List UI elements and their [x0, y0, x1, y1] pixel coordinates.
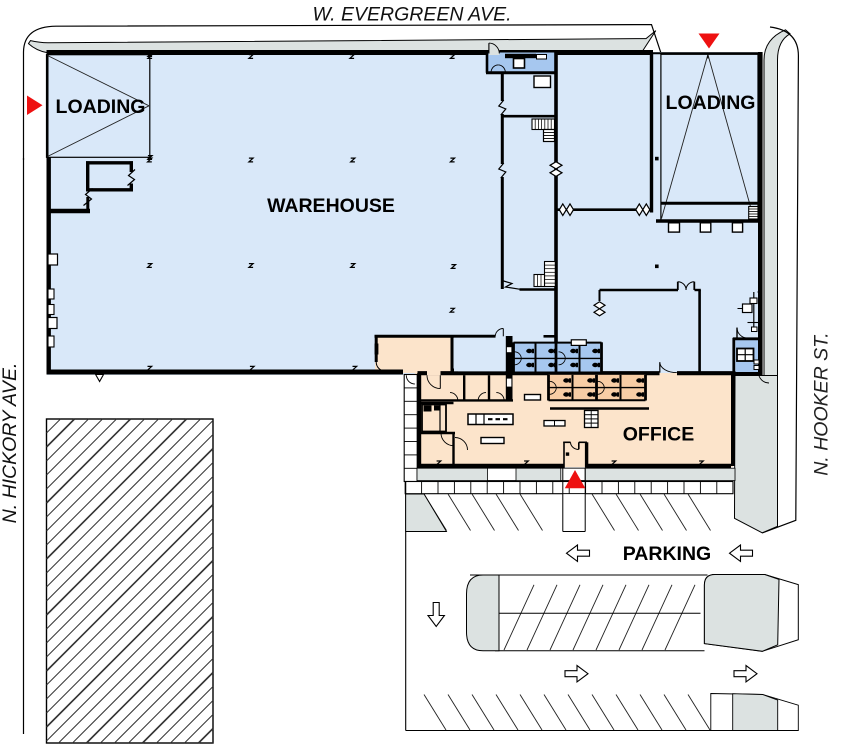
svg-text:OFFICE: OFFICE [623, 424, 695, 446]
svg-text:W. EVERGREEN AVE.: W. EVERGREEN AVE. [312, 4, 511, 26]
svg-text:N. HOOKER ST.: N. HOOKER ST. [811, 332, 833, 475]
svg-text:PARKING: PARKING [623, 543, 711, 565]
svg-text:N. HICKORY AVE.: N. HICKORY AVE. [0, 363, 21, 524]
svg-text:WAREHOUSE: WAREHOUSE [267, 195, 395, 217]
svg-text:LOADING: LOADING [56, 96, 146, 118]
svg-text:LOADING: LOADING [666, 92, 756, 114]
